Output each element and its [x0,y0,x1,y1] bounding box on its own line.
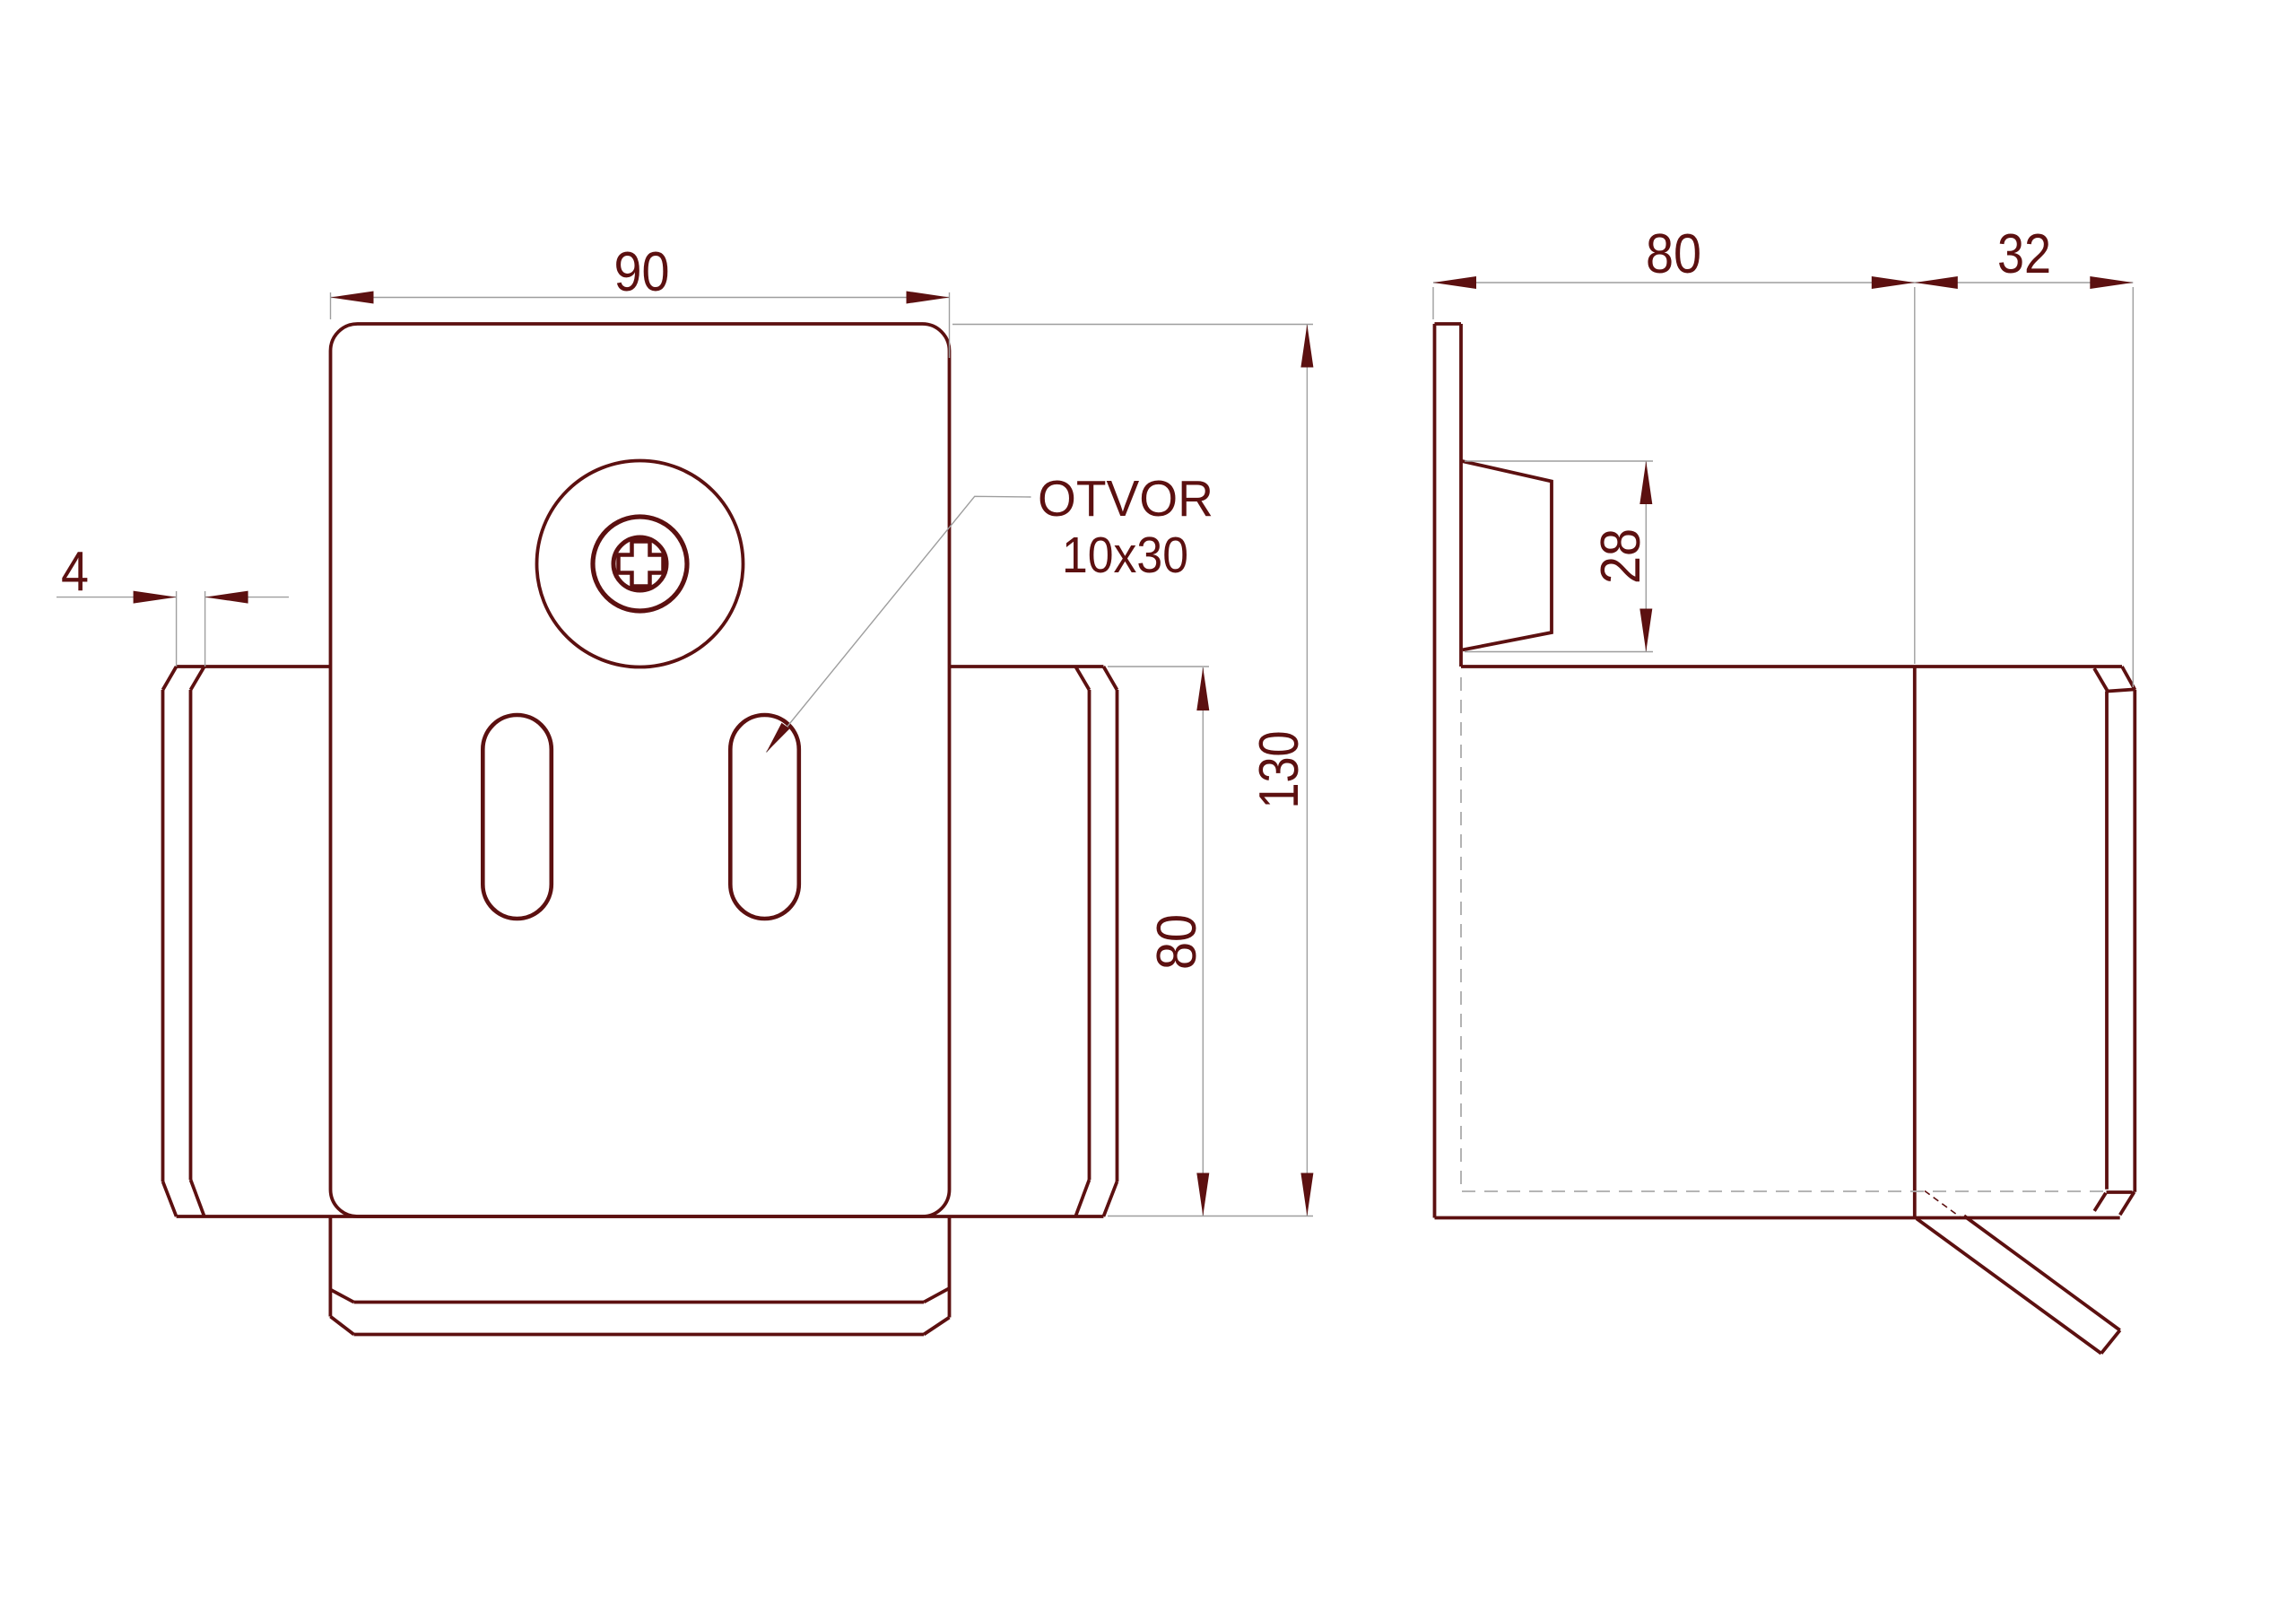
svg-text:80: 80 [1146,914,1208,970]
svg-text:OTVOR: OTVOR [1038,470,1213,527]
svg-text:4: 4 [61,541,89,603]
svg-text:32: 32 [1997,223,2051,285]
svg-text:28: 28 [1590,528,1652,584]
svg-text:10x30: 10x30 [1062,527,1188,584]
svg-text:130: 130 [1248,731,1310,809]
svg-text:90: 90 [614,241,670,303]
svg-text:80: 80 [1646,223,1701,285]
